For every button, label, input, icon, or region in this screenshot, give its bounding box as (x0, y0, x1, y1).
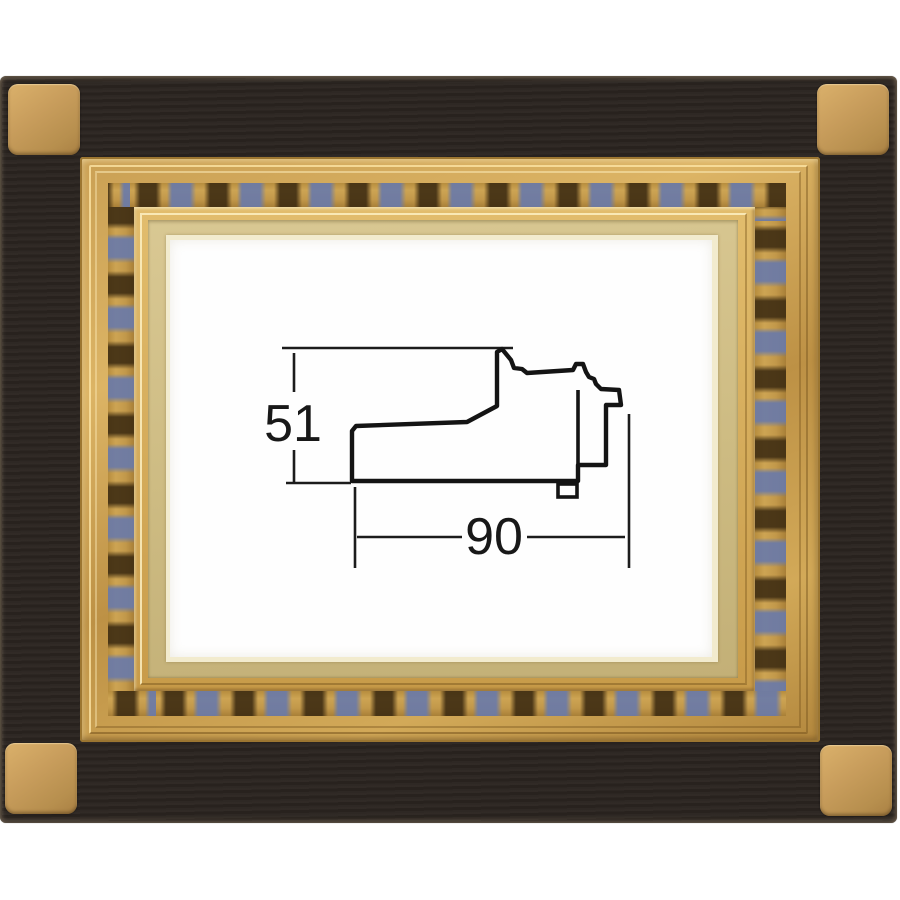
decor-band-bottom (108, 691, 786, 716)
cross-section-diagram: 51 90 (170, 240, 712, 657)
decor-band-left (108, 183, 134, 716)
corner-square-bottom-left (5, 743, 77, 814)
corner-square-top-left (8, 84, 80, 155)
bottom-foot-square (558, 484, 577, 497)
width-dimension-label: 90 (465, 508, 523, 566)
height-dimension-label: 51 (264, 395, 322, 453)
decor-band-top (108, 183, 786, 207)
artwork-area: 51 90 (170, 240, 712, 657)
inner-gold-frame: 51 90 (80, 157, 820, 742)
decor-band-right (755, 183, 786, 716)
corner-square-bottom-right (820, 745, 892, 816)
corner-square-top-right (817, 84, 889, 155)
moulding-profile-outline (352, 349, 621, 481)
frame-product-photo: 51 90 (0, 0, 900, 900)
